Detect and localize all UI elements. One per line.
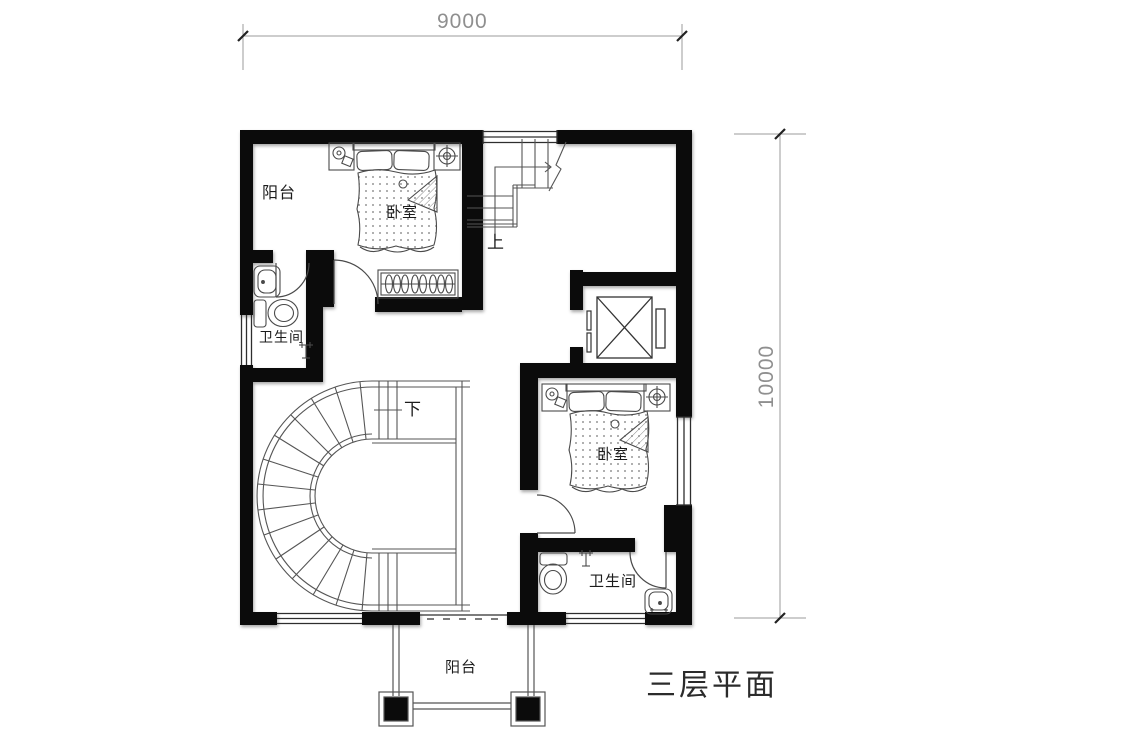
wall-bathroom2-north xyxy=(538,538,635,552)
room-label-bathroom1: 卫生间 xyxy=(259,330,304,344)
wall-elevator-north xyxy=(570,272,692,286)
nightstand-icon xyxy=(542,384,567,411)
window-icon xyxy=(566,614,645,624)
room-label-bedroom1: 卧室 xyxy=(386,205,418,220)
pillow-icon xyxy=(357,150,430,170)
stair-label-up: 上 xyxy=(487,234,505,251)
wall-left-lower xyxy=(240,365,253,625)
sink-icon xyxy=(645,589,672,614)
ceiling-light-icon xyxy=(646,386,668,408)
wall-bedroom2-west-lower xyxy=(520,533,538,625)
double-bed-icon xyxy=(353,143,437,252)
window-icon xyxy=(483,130,557,144)
ceiling-light-icon xyxy=(436,145,458,167)
toilet-icon xyxy=(254,300,298,328)
column-icon xyxy=(511,692,545,726)
door-swing-icon xyxy=(276,263,309,297)
page-title: 三层平面 xyxy=(646,668,778,704)
room-label-bathroom2: 卫生间 xyxy=(589,574,637,589)
wall-bedroom2-west-upper xyxy=(520,363,538,490)
wall-bathroom1-south xyxy=(240,368,323,382)
wardrobe-icon xyxy=(378,270,458,298)
wall-top-right xyxy=(557,130,692,144)
bedroom2-furniture xyxy=(542,384,670,492)
wall-top-left xyxy=(240,130,483,144)
bedside-lamp-icon xyxy=(546,388,566,408)
balcony-door-track xyxy=(420,615,507,619)
pillow-icon xyxy=(569,391,642,411)
room-label-bedroom2: 卧室 xyxy=(597,447,629,462)
wall-left-upper xyxy=(240,130,253,315)
window-icon xyxy=(277,614,362,624)
column-icon xyxy=(379,692,413,726)
double-bed-icon xyxy=(566,384,649,492)
room-label-balcony-bottom: 阳台 xyxy=(445,660,477,675)
spiral-staircase-icon xyxy=(257,381,470,611)
wall-bedroom1-south xyxy=(375,297,462,312)
bedside-lamp-icon xyxy=(333,147,353,167)
wall-bathroom1-stub xyxy=(306,250,334,307)
window-icon xyxy=(676,417,692,505)
door-swing-icon xyxy=(334,260,378,304)
wall-bathroom1-north xyxy=(240,250,273,263)
nightstand-icon xyxy=(644,384,670,411)
elevator-counterweight xyxy=(656,309,665,348)
floor-plan-drawing xyxy=(0,0,1134,752)
shower-head-icon xyxy=(579,550,593,566)
wall-bottom-1 xyxy=(240,612,277,625)
wall-bathroom2-ne-stub xyxy=(664,505,692,552)
elevator-shaft-icon xyxy=(597,297,665,358)
stair-break-line xyxy=(549,142,566,191)
dimension-value-top: 9000 xyxy=(437,11,488,32)
elevator-door-icon xyxy=(587,311,591,352)
stair-label-down: 下 xyxy=(404,401,422,418)
nightstand-icon xyxy=(434,143,460,170)
dimension-value-right: 10000 xyxy=(756,345,777,408)
floor-plan-page: 阳台 卧室 卫生间 上 下 卧室 卫生间 阳台 9000 10000 三层平面 xyxy=(0,0,1134,752)
room-label-balcony-top: 阳台 xyxy=(262,186,296,202)
wall-bedroom2-north xyxy=(520,363,692,378)
nightstand-icon xyxy=(329,143,354,170)
wall-bottom-2 xyxy=(362,612,420,625)
spiral-treads xyxy=(258,382,367,611)
walls xyxy=(240,130,692,625)
door-swing-icon xyxy=(537,495,575,533)
window-icon xyxy=(242,315,252,365)
toilet-icon xyxy=(540,553,568,594)
stair-direction-line xyxy=(495,167,551,242)
